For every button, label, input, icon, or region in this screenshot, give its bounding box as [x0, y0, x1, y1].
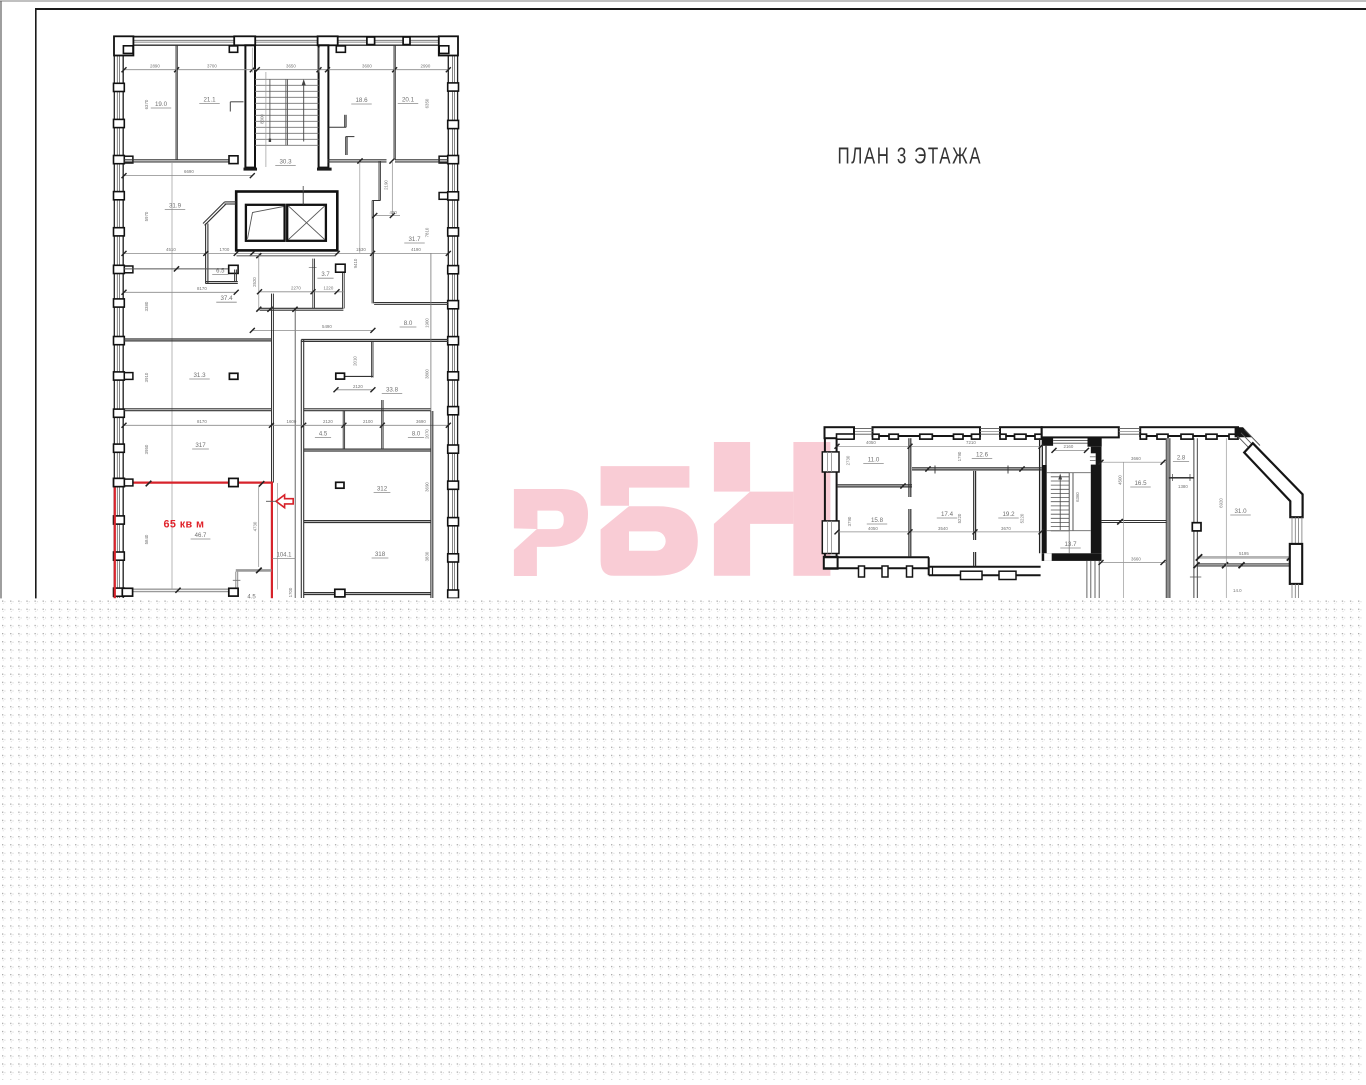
svg-text:2120: 2120	[353, 384, 363, 389]
svg-text:2270: 2270	[291, 286, 301, 291]
svg-text:1600: 1600	[287, 419, 297, 424]
svg-text:5970: 5970	[144, 211, 149, 221]
svg-text:312: 312	[377, 486, 388, 493]
svg-text:31.9: 31.9	[169, 203, 182, 210]
svg-text:2.8: 2.8	[1177, 456, 1186, 462]
svg-text:3670: 3670	[1001, 526, 1011, 531]
svg-text:420: 420	[390, 210, 398, 215]
svg-text:2120: 2120	[323, 419, 333, 424]
svg-text:31.0: 31.0	[1234, 508, 1247, 515]
svg-text:8170: 8170	[197, 419, 207, 424]
svg-text:2190: 2190	[384, 180, 389, 190]
svg-text:3950: 3950	[144, 444, 149, 454]
svg-text:11.0: 11.0	[868, 457, 880, 464]
svg-text:6370: 6370	[144, 99, 149, 109]
svg-text:8.0: 8.0	[404, 320, 413, 327]
svg-text:3540: 3540	[938, 526, 948, 531]
svg-text:3790: 3790	[847, 516, 852, 526]
svg-text:6690: 6690	[184, 169, 194, 174]
svg-text:6360: 6360	[1075, 492, 1080, 502]
svg-text:16.5: 16.5	[1134, 480, 1147, 487]
svg-text:2890: 2890	[150, 63, 160, 68]
svg-text:14.0: 14.0	[1233, 588, 1242, 593]
svg-text:3380: 3380	[144, 301, 149, 311]
svg-text:3650: 3650	[286, 63, 296, 68]
svg-text:15.8: 15.8	[871, 517, 884, 524]
svg-text:2520: 2520	[252, 277, 257, 287]
svg-text:2070: 2070	[425, 429, 430, 439]
svg-text:12.6: 12.6	[976, 452, 989, 459]
svg-text:4050: 4050	[866, 440, 876, 445]
svg-text:1220: 1220	[324, 286, 334, 291]
svg-text:46.7: 46.7	[195, 533, 207, 539]
svg-text:1380: 1380	[1178, 484, 1188, 489]
svg-text:317: 317	[195, 442, 206, 449]
svg-text:6350: 6350	[425, 98, 430, 108]
svg-text:2990: 2990	[421, 63, 431, 68]
svg-text:9410: 9410	[353, 258, 358, 268]
svg-text:5490: 5490	[322, 324, 332, 329]
svg-text:104.1: 104.1	[276, 553, 292, 559]
svg-text:3660: 3660	[1131, 556, 1141, 561]
svg-text:5220: 5220	[957, 513, 962, 523]
svg-text:8.0: 8.0	[412, 432, 421, 438]
svg-text:1900: 1900	[425, 318, 430, 328]
svg-text:3700: 3700	[207, 63, 217, 68]
svg-text:6920: 6920	[1219, 498, 1224, 508]
svg-text:19.0: 19.0	[155, 101, 168, 108]
svg-text:1700: 1700	[288, 587, 293, 597]
svg-text:4500: 4500	[1118, 475, 1123, 485]
svg-text:8170: 8170	[197, 286, 207, 291]
svg-text:21.1: 21.1	[203, 97, 216, 104]
svg-text:37.4: 37.4	[220, 295, 233, 302]
svg-text:33.8: 33.8	[386, 387, 399, 394]
svg-text:5195: 5195	[1239, 551, 1249, 556]
svg-text:18.6: 18.6	[355, 97, 368, 104]
svg-text:4510: 4510	[166, 247, 176, 252]
svg-text:5840: 5840	[144, 534, 149, 544]
svg-text:13.7: 13.7	[1064, 541, 1077, 548]
svg-text:31.3: 31.3	[193, 372, 206, 379]
svg-text:19.2: 19.2	[1002, 511, 1015, 518]
svg-text:2100: 2100	[363, 419, 373, 424]
svg-text:3600: 3600	[362, 63, 372, 68]
svg-text:4.5: 4.5	[319, 432, 328, 438]
svg-text:31.7: 31.7	[408, 236, 421, 243]
svg-text:65 кв м: 65 кв м	[164, 519, 205, 531]
svg-text:7210: 7210	[966, 440, 976, 445]
svg-text:ПЛАН 3 ЭТАЖА: ПЛАН 3 ЭТАЖА	[838, 143, 983, 169]
svg-text:4190: 4190	[411, 247, 421, 252]
svg-text:4050: 4050	[868, 526, 878, 531]
svg-text:3800: 3800	[425, 369, 430, 379]
svg-text:5220: 5220	[1020, 513, 1025, 523]
svg-text:3910: 3910	[144, 372, 149, 382]
svg-text:1700: 1700	[220, 247, 230, 252]
svg-text:7810: 7810	[425, 227, 430, 237]
svg-text:6.5: 6.5	[216, 269, 225, 275]
svg-text:3690: 3690	[425, 482, 430, 492]
svg-text:30.3: 30.3	[279, 159, 292, 166]
svg-text:4730: 4730	[252, 521, 257, 531]
svg-text:1790: 1790	[957, 451, 962, 461]
svg-text:8300: 8300	[259, 114, 264, 124]
svg-text:3830: 3830	[425, 551, 430, 561]
svg-text:2010: 2010	[353, 356, 358, 366]
svg-text:3690: 3690	[416, 419, 426, 424]
svg-text:2160: 2160	[1064, 444, 1074, 449]
svg-text:318: 318	[375, 551, 386, 558]
svg-text:20.1: 20.1	[402, 97, 415, 104]
svg-text:2730: 2730	[846, 455, 851, 465]
svg-text:1530: 1530	[356, 247, 366, 252]
svg-text:3.7: 3.7	[321, 272, 330, 278]
svg-text:17.4: 17.4	[941, 511, 954, 518]
svg-text:3660: 3660	[1131, 456, 1141, 461]
